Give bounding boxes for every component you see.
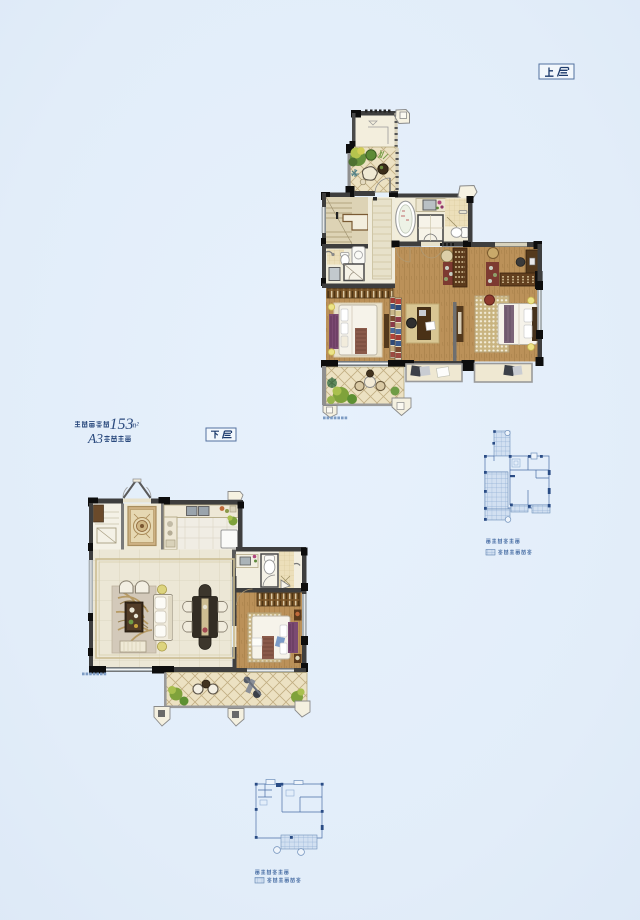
svg-text:m²: m² [131,421,140,430]
svg-text:A3: A3 [87,431,103,446]
